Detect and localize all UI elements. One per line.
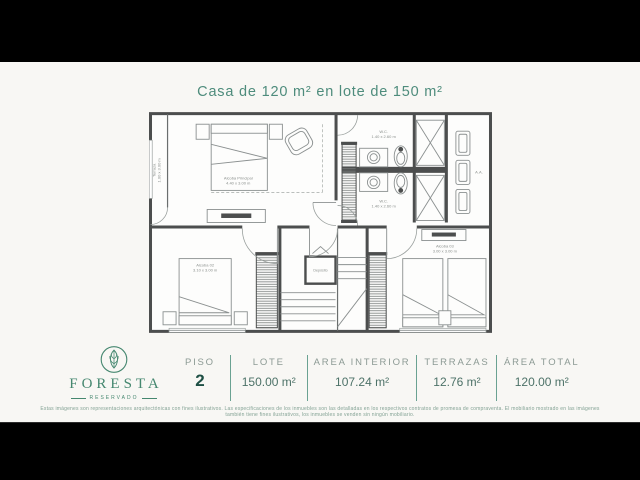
closet-alcoba03	[369, 255, 386, 328]
bed-alcoba03-right	[448, 259, 486, 327]
brand-subtitle: RESERVADO	[90, 395, 139, 401]
stat-lote-value: 150.00 m²	[237, 375, 301, 389]
stat-terrazas-label: TERRAZAS	[423, 357, 490, 368]
stat-piso: PISO 2	[170, 355, 230, 401]
room-dims-alcoba-principal: 4.40 x 3.00 m	[226, 180, 251, 185]
closet-alcoba03-cap-top	[368, 252, 387, 255]
stat-lote: LOTE 150.00 m²	[230, 355, 307, 401]
nightstand-a02-right	[234, 312, 247, 325]
bed-alcoba03-left-foot	[403, 318, 443, 327]
room-dims-alcoba02: 3.10 x 3.00 m	[193, 268, 218, 273]
stat-terrazas-value: 12.76 m²	[423, 375, 490, 389]
bed-alcoba02-headboard	[179, 316, 231, 325]
slide-content: Casa de 120 m² en lote de 150 m²	[0, 62, 640, 422]
disclaimer-text: Estas imágenes son representaciones arqu…	[30, 406, 610, 418]
tv-alcoba03	[432, 233, 456, 237]
closet-bath-cap-top	[341, 142, 357, 145]
room-label-aa: A.A.	[475, 169, 483, 174]
wc-divider-wall	[342, 167, 446, 173]
tv-principal	[221, 213, 251, 218]
closet-alcoba02-cap-top	[255, 252, 278, 255]
stat-piso-value: 2	[176, 371, 224, 391]
closet-bath-cap-bottom	[341, 220, 357, 223]
bed-alcoba03-right-foot	[448, 318, 486, 327]
stats-row: PISO 2 LOTE 150.00 m² AREA INTERIOR 107.…	[170, 345, 586, 401]
subtitle-rule-left	[71, 398, 86, 399]
stat-lote-label: LOTE	[237, 357, 301, 368]
letterbox-top	[0, 0, 640, 63]
bed-alcoba03-left	[403, 259, 443, 327]
letterbox-bottom	[0, 422, 640, 480]
brand-subtitle-row: RESERVADO	[71, 395, 158, 401]
room-dims-wc-top: 1.40 x 2.60 m	[372, 134, 397, 139]
page-title: Casa de 120 m² en lote de 150 m²	[0, 84, 640, 100]
brand-logo: FORESTA RESERVADO	[58, 345, 170, 401]
stat-area-total-value: 120.00 m²	[503, 375, 580, 389]
stat-area-total-label: ÁREA TOTAL	[503, 357, 580, 368]
toilet-top-tank	[398, 147, 403, 152]
leaf-emblem-icon	[98, 345, 130, 374]
info-band: FORESTA RESERVADO PISO 2 LOTE 150.00 m²	[58, 345, 586, 401]
closet-alcoba02	[256, 255, 277, 328]
toilet-bottom-tank	[398, 188, 403, 193]
subtitle-rule-right	[142, 398, 157, 399]
room-dims-wc-bottom: 1.40 x 2.60 m	[372, 203, 397, 208]
bed-principal-headboard	[211, 124, 267, 133]
stat-area-interior-value: 107.24 m²	[314, 375, 411, 389]
nightstand-right	[269, 124, 282, 139]
nightstand-a02-left	[163, 312, 176, 325]
stat-piso-label: PISO	[176, 357, 224, 368]
stat-area-interior: AREA INTERIOR 107.24 m²	[307, 355, 417, 401]
nightstand-left	[196, 124, 209, 139]
stat-area-total: ÁREA TOTAL 120.00 m²	[496, 355, 586, 401]
room-label-deposito: Depósito	[313, 269, 327, 273]
room-dims-alcoba03: 3.00 x 3.00 m	[433, 249, 458, 254]
room-dims-terraza: 1.00 x 3.00 m	[157, 158, 162, 183]
floor-plan: Terraza 1.00 x 3.00 m Alcoba Principal 4…	[149, 112, 492, 333]
stat-area-interior-label: AREA INTERIOR	[314, 357, 411, 368]
brand-name: FORESTA	[65, 376, 162, 393]
slide: Casa de 120 m² en lote de 150 m²	[0, 0, 640, 480]
stat-terrazas: TERRAZAS 12.76 m²	[416, 355, 496, 401]
nightstand-a03	[439, 311, 451, 325]
